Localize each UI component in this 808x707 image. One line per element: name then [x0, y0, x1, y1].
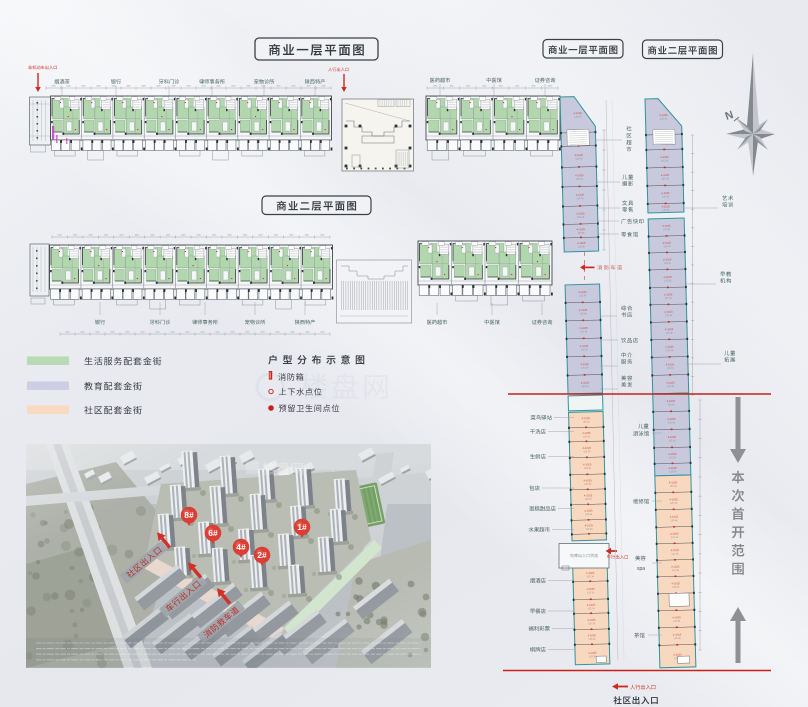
svg-text:4-1025: 4-1025: [586, 587, 595, 591]
svg-text:4-1025: 4-1025: [663, 257, 672, 261]
svg-text:125.36: 125.36: [672, 587, 680, 589]
svg-text:125.36: 125.36: [669, 457, 677, 459]
svg-text:4-1025: 4-1025: [668, 452, 677, 456]
svg-text:4-1025: 4-1025: [669, 497, 678, 501]
svg-text:125.36: 125.36: [667, 404, 675, 406]
svg-text:125.36: 125.36: [583, 421, 591, 423]
svg-text:125.36: 125.36: [664, 263, 672, 265]
svg-text:125.36: 125.36: [665, 298, 673, 300]
svg-text:4-1025: 4-1025: [587, 618, 596, 622]
svg-text:125.36: 125.36: [577, 233, 585, 235]
svg-text:125.36: 125.36: [585, 514, 593, 516]
svg-text:125.36: 125.36: [589, 656, 597, 658]
svg-text:4-1025: 4-1025: [662, 204, 671, 208]
svg-text:4-1025: 4-1025: [660, 155, 669, 159]
svg-text:4-1025: 4-1025: [668, 466, 677, 470]
svg-text:4-1025: 4-1025: [672, 615, 681, 619]
svg-text:125.36: 125.36: [661, 160, 669, 162]
svg-text:125.36: 125.36: [668, 422, 676, 424]
svg-text:4-1025: 4-1025: [664, 292, 673, 296]
svg-text:125.36: 125.36: [668, 440, 676, 442]
svg-text:125.36: 125.36: [673, 621, 681, 623]
svg-text:125.36: 125.36: [671, 537, 679, 539]
svg-text:4-1025: 4-1025: [670, 515, 679, 519]
svg-text:125.36: 125.36: [660, 118, 668, 120]
svg-text:125.36: 125.36: [577, 217, 585, 219]
svg-text:4-1025: 4-1025: [577, 241, 586, 245]
svg-text:125.36: 125.36: [584, 468, 592, 470]
svg-text:125.36: 125.36: [587, 576, 595, 578]
svg-text:4-1025: 4-1025: [664, 310, 673, 314]
svg-text:4-1025: 4-1025: [671, 564, 680, 568]
svg-text:125.36: 125.36: [666, 350, 674, 352]
svg-text:125.36: 125.36: [581, 367, 589, 369]
svg-text:125.36: 125.36: [671, 520, 679, 522]
svg-text:spa: spa: [637, 566, 645, 572]
svg-text:125.36: 125.36: [576, 198, 584, 200]
svg-text:125.36: 125.36: [667, 368, 675, 370]
svg-text:4-1025: 4-1025: [579, 308, 588, 312]
svg-text:125.36: 125.36: [584, 484, 592, 486]
svg-text:4-1025: 4-1025: [661, 173, 670, 177]
svg-text:125.36: 125.36: [666, 332, 674, 334]
svg-text:4-1025: 4-1025: [584, 509, 593, 513]
svg-text:125.36: 125.36: [669, 471, 677, 473]
svg-text:125.36: 125.36: [674, 638, 682, 640]
svg-text:125.36: 125.36: [574, 116, 582, 118]
svg-text:4-1025: 4-1025: [666, 381, 675, 385]
svg-text:4-1025: 4-1025: [575, 153, 584, 157]
svg-text:125.36: 125.36: [575, 158, 583, 160]
svg-text:125.36: 125.36: [662, 210, 670, 212]
svg-text:125.36: 125.36: [662, 196, 670, 198]
svg-text:4-1025: 4-1025: [583, 446, 592, 450]
svg-text:4-1025: 4-1025: [586, 571, 595, 575]
svg-text:4-1025: 4-1025: [580, 362, 589, 366]
svg-text:125.36: 125.36: [588, 639, 596, 641]
svg-text:4-1025: 4-1025: [659, 113, 668, 117]
svg-text:125.36: 125.36: [583, 436, 591, 438]
svg-text:125.36: 125.36: [580, 331, 588, 333]
svg-text:125.36: 125.36: [587, 592, 595, 594]
svg-text:125.36: 125.36: [663, 229, 671, 231]
svg-text:125.36: 125.36: [588, 623, 596, 625]
svg-text:4-1025: 4-1025: [582, 431, 591, 435]
svg-text:125.36: 125.36: [667, 386, 675, 388]
svg-text:4-1025: 4-1025: [663, 241, 672, 245]
svg-text:4-1025: 4-1025: [673, 632, 682, 636]
svg-text:125.36: 125.36: [580, 313, 588, 315]
svg-text:125.36: 125.36: [581, 349, 589, 351]
svg-text:4-1025: 4-1025: [578, 290, 587, 294]
svg-text:125.36: 125.36: [670, 486, 678, 488]
svg-text:4-1025: 4-1025: [667, 399, 676, 403]
svg-text:125.36: 125.36: [664, 280, 672, 282]
svg-text:4-1025: 4-1025: [671, 548, 680, 552]
svg-text:4-1025: 4-1025: [588, 633, 597, 637]
svg-text:4-1025: 4-1025: [671, 581, 680, 585]
svg-text:125.36: 125.36: [576, 179, 584, 181]
svg-text:4-1025: 4-1025: [663, 275, 672, 279]
svg-text:4-1025: 4-1025: [576, 211, 585, 215]
svg-text:4-1025: 4-1025: [585, 523, 594, 527]
svg-text:125.36: 125.36: [672, 570, 680, 572]
svg-text:125.36: 125.36: [663, 246, 671, 248]
svg-text:4-1025: 4-1025: [665, 345, 674, 349]
svg-text:4-1025: 4-1025: [661, 191, 670, 195]
svg-text:4-1025: 4-1025: [580, 344, 589, 348]
svg-text:4-1025: 4-1025: [666, 362, 675, 366]
svg-text:4-1025: 4-1025: [667, 417, 676, 421]
svg-text:4-1025: 4-1025: [669, 480, 678, 484]
svg-text:4-1025: 4-1025: [588, 651, 597, 655]
svg-text:4-1025: 4-1025: [662, 224, 671, 228]
svg-text:4-1025: 4-1025: [579, 326, 588, 330]
svg-text:125.36: 125.36: [585, 529, 593, 531]
svg-text:125.36: 125.36: [670, 503, 678, 505]
svg-text:4-1025: 4-1025: [582, 416, 591, 420]
svg-text:4-1025: 4-1025: [665, 327, 674, 331]
svg-text:4-1025: 4-1025: [573, 111, 582, 115]
svg-text:125.36: 125.36: [579, 295, 587, 297]
svg-text:4-1025: 4-1025: [577, 227, 586, 231]
svg-text:4-1025: 4-1025: [584, 493, 593, 497]
svg-text:4-1025: 4-1025: [575, 173, 584, 177]
svg-text:125.36: 125.36: [585, 499, 593, 501]
svg-text:125.36: 125.36: [671, 553, 679, 555]
svg-text:4-1025: 4-1025: [583, 478, 592, 482]
svg-text:4-1025: 4-1025: [583, 462, 592, 466]
svg-text:4-1025: 4-1025: [668, 435, 677, 439]
svg-text:125.36: 125.36: [662, 178, 670, 180]
svg-text:125.36: 125.36: [588, 608, 596, 610]
svg-text:4-1025: 4-1025: [576, 193, 585, 197]
svg-text:125.36: 125.36: [578, 246, 586, 248]
svg-text:4-1025: 4-1025: [670, 532, 679, 536]
svg-text:125.36: 125.36: [665, 315, 673, 317]
svg-text:125.36: 125.36: [582, 386, 590, 388]
svg-text:4-1025: 4-1025: [587, 603, 596, 607]
svg-text:4-1025: 4-1025: [581, 381, 590, 385]
svg-text:125.36: 125.36: [583, 451, 591, 453]
